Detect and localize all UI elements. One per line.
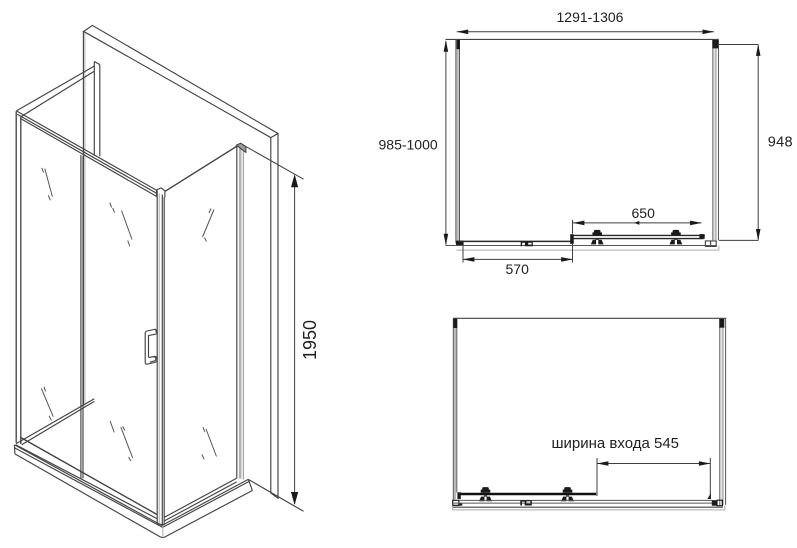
svg-text:948: 948	[768, 135, 793, 151]
svg-text:985-1000: 985-1000	[379, 137, 438, 153]
svg-text:1291-1306: 1291-1306	[557, 9, 624, 25]
svg-text:570: 570	[506, 261, 530, 277]
svg-text:1950: 1950	[300, 320, 320, 360]
svg-text:650: 650	[632, 205, 656, 221]
svg-text:ширина входа 545: ширина входа 545	[552, 435, 680, 452]
